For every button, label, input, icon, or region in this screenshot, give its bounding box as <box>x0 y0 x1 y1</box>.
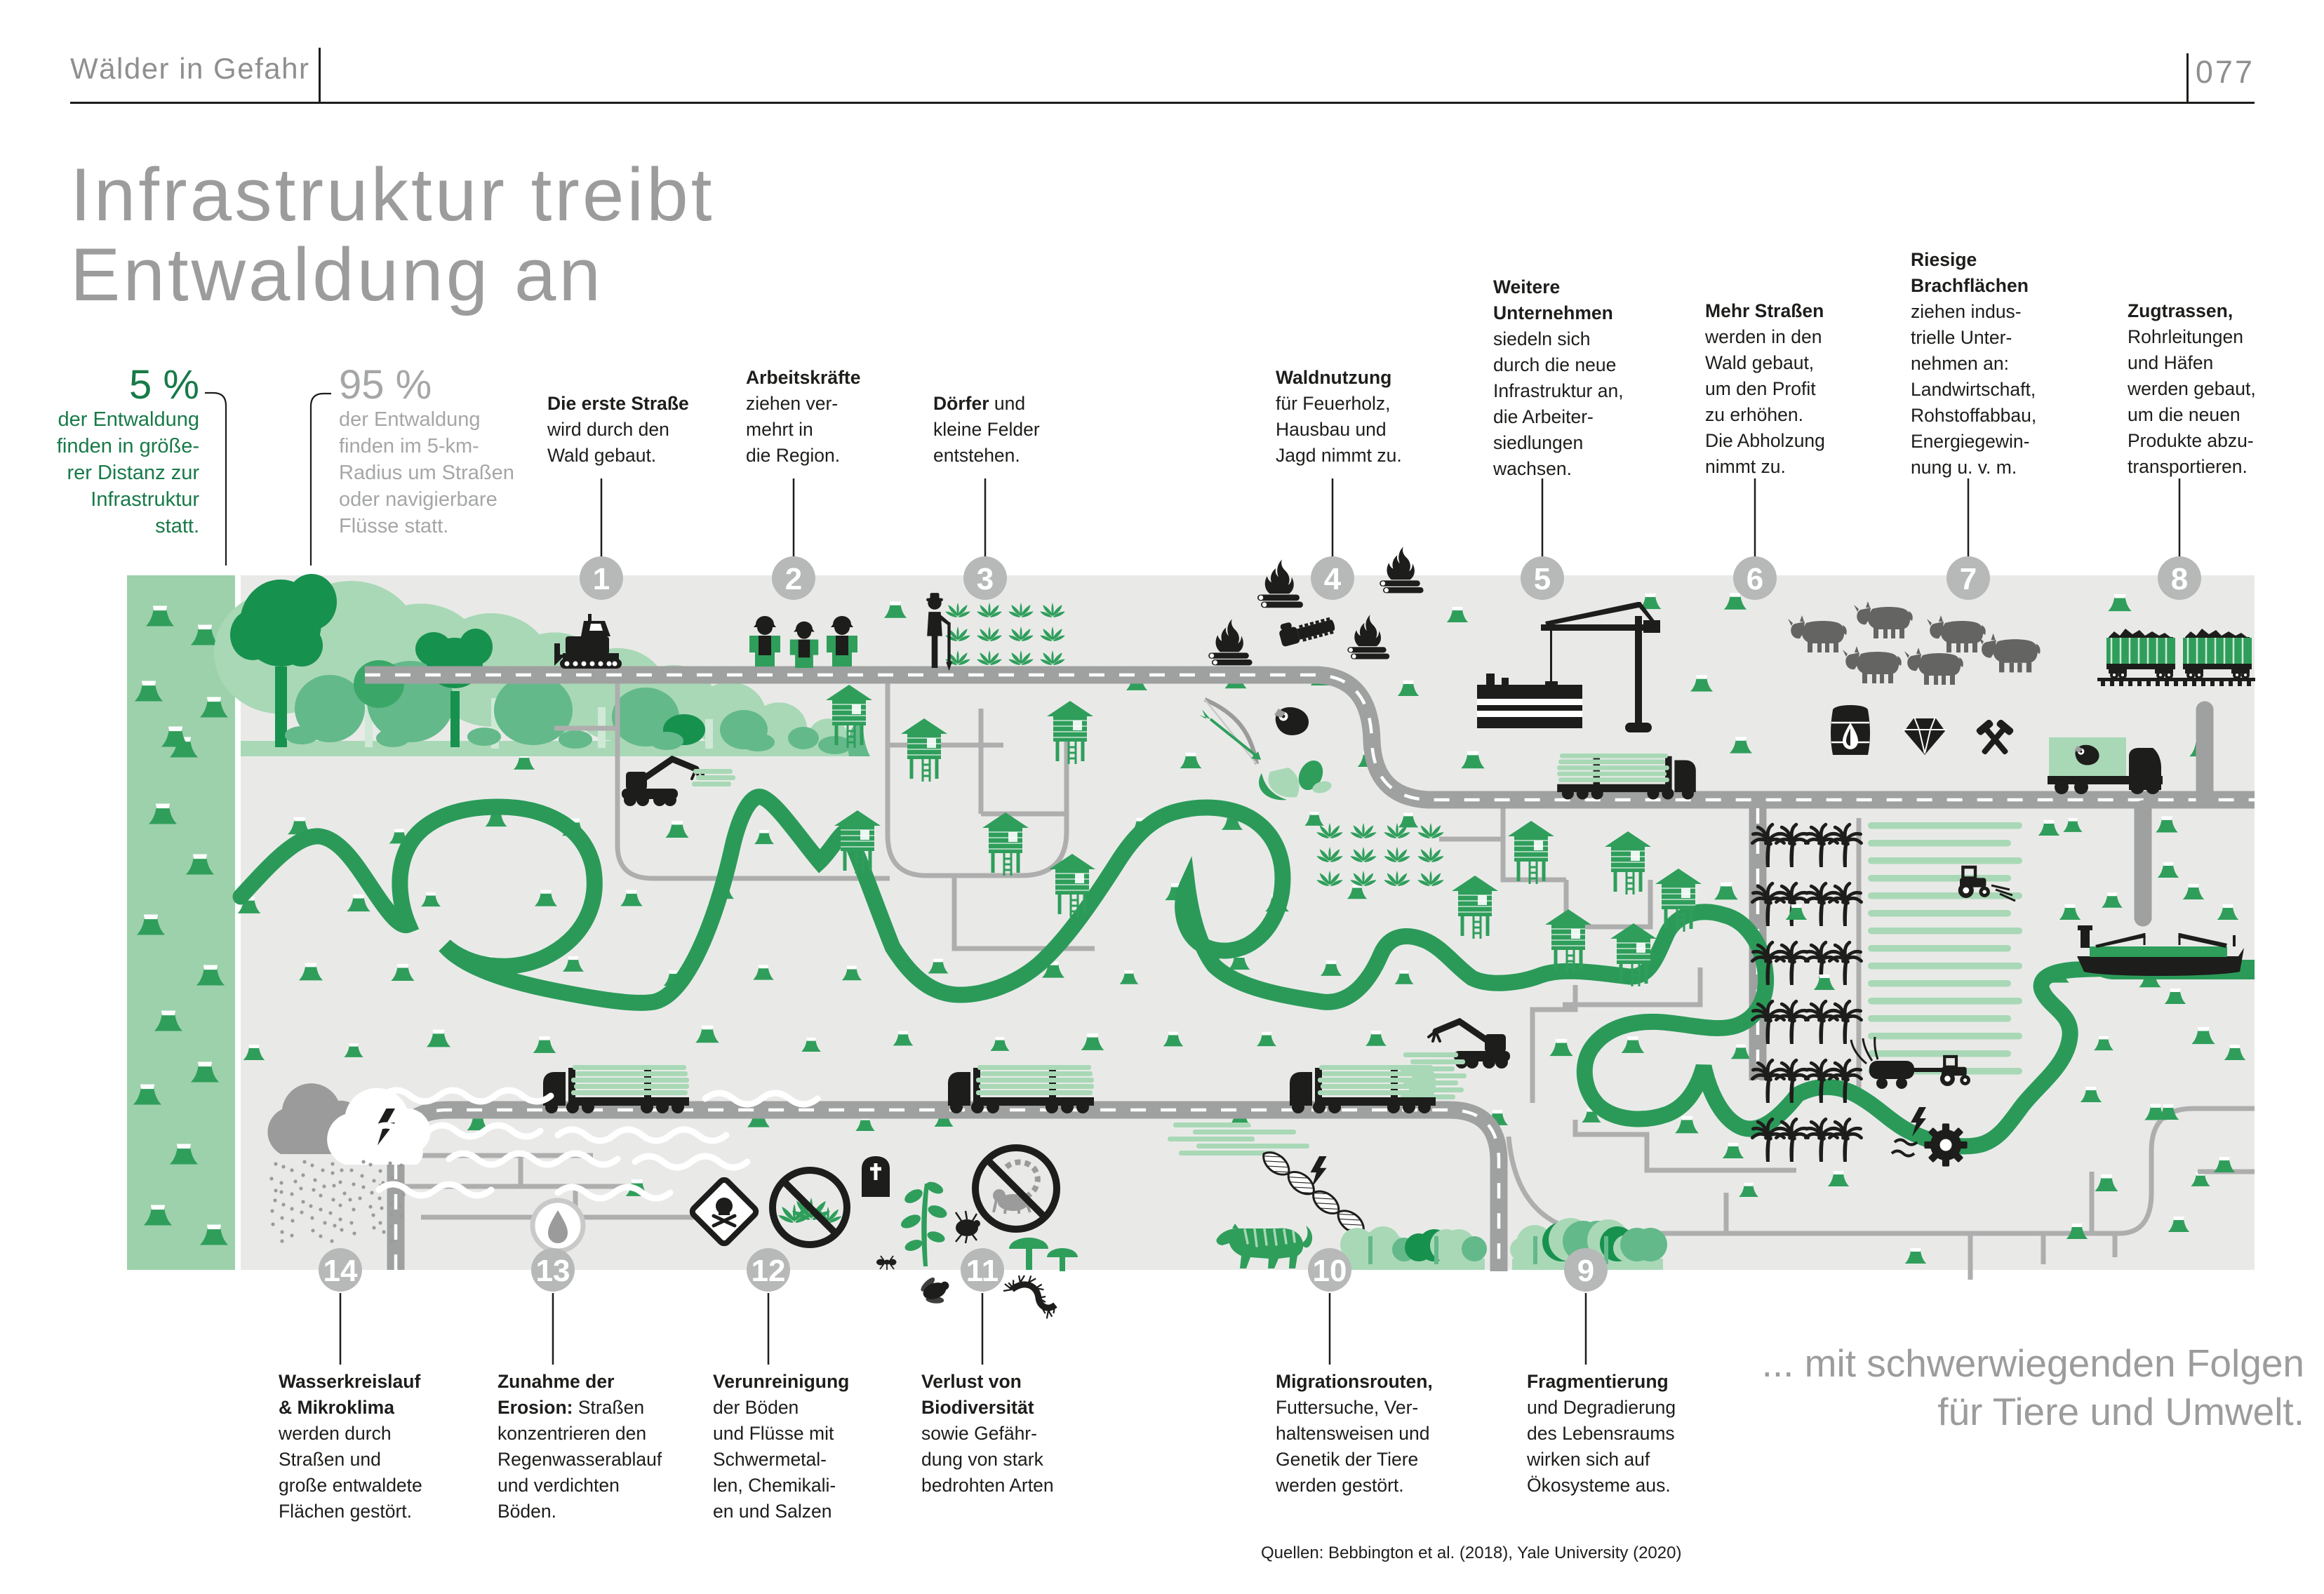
svg-text:durch die neue: durch die neue <box>1493 354 1616 375</box>
svg-text:bedrohten Arten: bedrohten Arten <box>921 1475 1054 1496</box>
svg-text:Migrationsrouten,: Migrationsrouten, <box>1276 1371 1433 1392</box>
svg-text:und Häfen: und Häfen <box>2128 352 2213 373</box>
svg-text:werden gestört.: werden gestört. <box>1275 1475 1404 1496</box>
svg-text:Unternehmen: Unternehmen <box>1493 302 1613 323</box>
svg-text:konzentrieren den: konzentrieren den <box>497 1423 646 1444</box>
svg-text:Jagd nimmt zu.: Jagd nimmt zu. <box>1276 445 1402 466</box>
svg-text:mehrt in: mehrt in <box>746 419 813 440</box>
svg-text:und Flüsse mit: und Flüsse mit <box>713 1423 834 1444</box>
svg-text:haltensweisen und: haltensweisen und <box>1276 1423 1430 1444</box>
svg-text:Rohstoffabbau,: Rohstoffabbau, <box>1911 405 2036 426</box>
svg-text:Quellen: Bebbington et al. (20: Quellen: Bebbington et al. (2018), Yale … <box>1261 1543 1681 1562</box>
svg-text:für Tiere und Umwelt.: für Tiere und Umwelt. <box>1937 1390 2304 1433</box>
svg-text:Die Abholzung: Die Abholzung <box>1705 430 1825 451</box>
svg-text:11: 11 <box>966 1254 999 1288</box>
svg-text:entstehen.: entstehen. <box>933 445 1020 466</box>
svg-text:2: 2 <box>785 562 802 596</box>
svg-text:kleine Felder: kleine Felder <box>933 419 1040 440</box>
svg-text:9: 9 <box>1577 1254 1594 1288</box>
svg-text:oder navigierbare: oder navigierbare <box>339 488 497 511</box>
svg-text:Infrastruktur an,: Infrastruktur an, <box>1493 380 1624 401</box>
svg-text:Zugtrassen,: Zugtrassen, <box>2128 300 2233 321</box>
svg-text:Schwermetal-: Schwermetal- <box>713 1449 827 1470</box>
svg-text:Genetik der Tiere: Genetik der Tiere <box>1276 1449 1418 1470</box>
svg-text:3: 3 <box>977 562 994 596</box>
svg-text:Energiegewin-: Energiegewin- <box>1911 431 2029 452</box>
svg-text:wachsen.: wachsen. <box>1492 458 1572 479</box>
svg-text:Futtersuche, Ver-: Futtersuche, Ver- <box>1276 1397 1418 1418</box>
svg-text:rer Distanz zur: rer Distanz zur <box>67 462 199 484</box>
svg-text:siedeln sich: siedeln sich <box>1493 328 1590 349</box>
svg-text:Fragmentierung: Fragmentierung <box>1527 1371 1669 1392</box>
svg-text:zu erhöhen.: zu erhöhen. <box>1705 404 1803 425</box>
svg-text:Arbeitskräfte: Arbeitskräfte <box>746 367 860 388</box>
svg-text:Flächen gestört.: Flächen gestört. <box>279 1501 412 1522</box>
svg-text:Biodiversität: Biodiversität <box>921 1397 1034 1418</box>
svg-text:Hausbau und: Hausbau und <box>1276 419 1387 440</box>
svg-text:um die neuen: um die neuen <box>2128 404 2240 425</box>
svg-text:6: 6 <box>1747 562 1763 596</box>
svg-text:5 %: 5 % <box>129 362 199 408</box>
svg-text:Böden.: Böden. <box>497 1501 556 1522</box>
svg-text:der Böden: der Böden <box>713 1397 799 1418</box>
svg-text:5: 5 <box>1534 562 1551 596</box>
svg-text:und verdichten: und verdichten <box>497 1475 620 1496</box>
svg-text:der Entwaldung: der Entwaldung <box>58 408 199 431</box>
svg-text:Produkte abzu-: Produkte abzu- <box>2128 430 2254 451</box>
svg-text:Verlust von: Verlust von <box>921 1371 1022 1392</box>
svg-text:Weitere: Weitere <box>1493 276 1560 297</box>
svg-text:um den Profit: um den Profit <box>1705 378 1816 399</box>
svg-text:finden im 5-km-: finden im 5-km- <box>339 435 479 457</box>
svg-text:Straßen und: Straßen und <box>279 1449 381 1470</box>
svg-text:werden gebaut,: werden gebaut, <box>2127 378 2256 399</box>
svg-text:trielle Unter-: trielle Unter- <box>1911 327 2012 348</box>
svg-text:Landwirtschaft,: Landwirtschaft, <box>1911 379 2036 400</box>
svg-text:Flüsse statt.: Flüsse statt. <box>339 515 448 537</box>
svg-text:Ökosysteme aus.: Ökosysteme aus. <box>1527 1475 1671 1496</box>
svg-text:Infrastruktur: Infrastruktur <box>91 488 199 511</box>
svg-text:10: 10 <box>1313 1254 1347 1288</box>
svg-text:8: 8 <box>2171 562 2188 596</box>
svg-text:für Feuerholz,: für Feuerholz, <box>1276 393 1391 414</box>
svg-text:Waldnutzung: Waldnutzung <box>1276 367 1391 388</box>
svg-text:die Arbeiter-: die Arbeiter- <box>1493 406 1594 427</box>
svg-text:en und Salzen: en und Salzen <box>713 1501 832 1522</box>
svg-text:95 %: 95 % <box>339 362 432 408</box>
svg-text:nimmt zu.: nimmt zu. <box>1705 456 1786 477</box>
svg-text:Wald gebaut.: Wald gebaut. <box>547 445 656 466</box>
svg-text:siedlungen: siedlungen <box>1493 432 1583 453</box>
svg-text:... mit schwerwiegenden Folgen: ... mit schwerwiegenden Folgen <box>1762 1341 2304 1385</box>
svg-text:transportieren.: transportieren. <box>2128 456 2248 477</box>
svg-text:und Degradierung: und Degradierung <box>1527 1397 1676 1418</box>
svg-text:ziehen indus-: ziehen indus- <box>1911 301 2022 322</box>
svg-text:die Region.: die Region. <box>746 445 840 466</box>
svg-text:wirken sich auf: wirken sich auf <box>1526 1449 1650 1470</box>
svg-text:12: 12 <box>752 1254 786 1288</box>
svg-text:Erosion: Straßen: Erosion: Straßen <box>497 1397 644 1418</box>
svg-text:Radius um Straßen: Radius um Straßen <box>339 462 514 484</box>
svg-text:Regenwasserablauf: Regenwasserablauf <box>497 1449 662 1470</box>
svg-text:dung von stark: dung von stark <box>921 1449 1044 1470</box>
svg-text:077: 077 <box>2196 54 2255 90</box>
svg-text:len, Chemikali-: len, Chemikali- <box>713 1475 836 1496</box>
svg-text:14: 14 <box>323 1254 358 1288</box>
svg-text:werden in den: werden in den <box>1704 326 1822 347</box>
svg-text:Rohrleitungen: Rohrleitungen <box>2128 326 2243 347</box>
svg-text:werden durch: werden durch <box>278 1423 392 1444</box>
svg-text:Verunreinigung: Verunreinigung <box>713 1371 849 1392</box>
svg-text:der Entwaldung: der Entwaldung <box>339 408 481 431</box>
svg-text:nung u. v. m.: nung u. v. m. <box>1911 457 2017 478</box>
svg-text:Wälder in Gefahr: Wälder in Gefahr <box>70 52 309 85</box>
svg-text:4: 4 <box>1324 562 1342 596</box>
svg-text:Entwaldung an: Entwaldung an <box>70 232 603 316</box>
svg-text:Dörfer und: Dörfer und <box>933 393 1025 414</box>
svg-text:1: 1 <box>593 562 610 596</box>
svg-text:Zunahme der: Zunahme der <box>497 1371 614 1392</box>
svg-text:& Mikroklima: & Mikroklima <box>279 1397 394 1418</box>
svg-text:Mehr Straßen: Mehr Straßen <box>1705 300 1824 321</box>
svg-text:Die erste Straße: Die erste Straße <box>547 393 689 414</box>
svg-text:7: 7 <box>1960 562 1977 596</box>
svg-text:statt.: statt. <box>155 515 199 537</box>
svg-text:sowie Gefähr-: sowie Gefähr- <box>921 1423 1037 1444</box>
svg-text:Infrastruktur treibt: Infrastruktur treibt <box>70 152 714 236</box>
svg-text:des Lebensraums: des Lebensraums <box>1527 1423 1675 1444</box>
svg-text:finden in größe-: finden in größe- <box>57 435 199 457</box>
svg-text:wird durch den: wird durch den <box>547 419 669 440</box>
svg-text:Wasserkreislauf: Wasserkreislauf <box>279 1371 420 1392</box>
svg-text:Riesige: Riesige <box>1911 249 1977 270</box>
svg-text:ziehen ver-: ziehen ver- <box>746 393 838 414</box>
svg-text:13: 13 <box>536 1254 570 1288</box>
svg-text:nehmen an:: nehmen an: <box>1911 353 2009 374</box>
svg-text:große entwaldete: große entwaldete <box>279 1475 422 1496</box>
svg-text:Wald gebaut,: Wald gebaut, <box>1705 352 1814 373</box>
svg-text:Brachflächen: Brachflächen <box>1911 275 2029 296</box>
